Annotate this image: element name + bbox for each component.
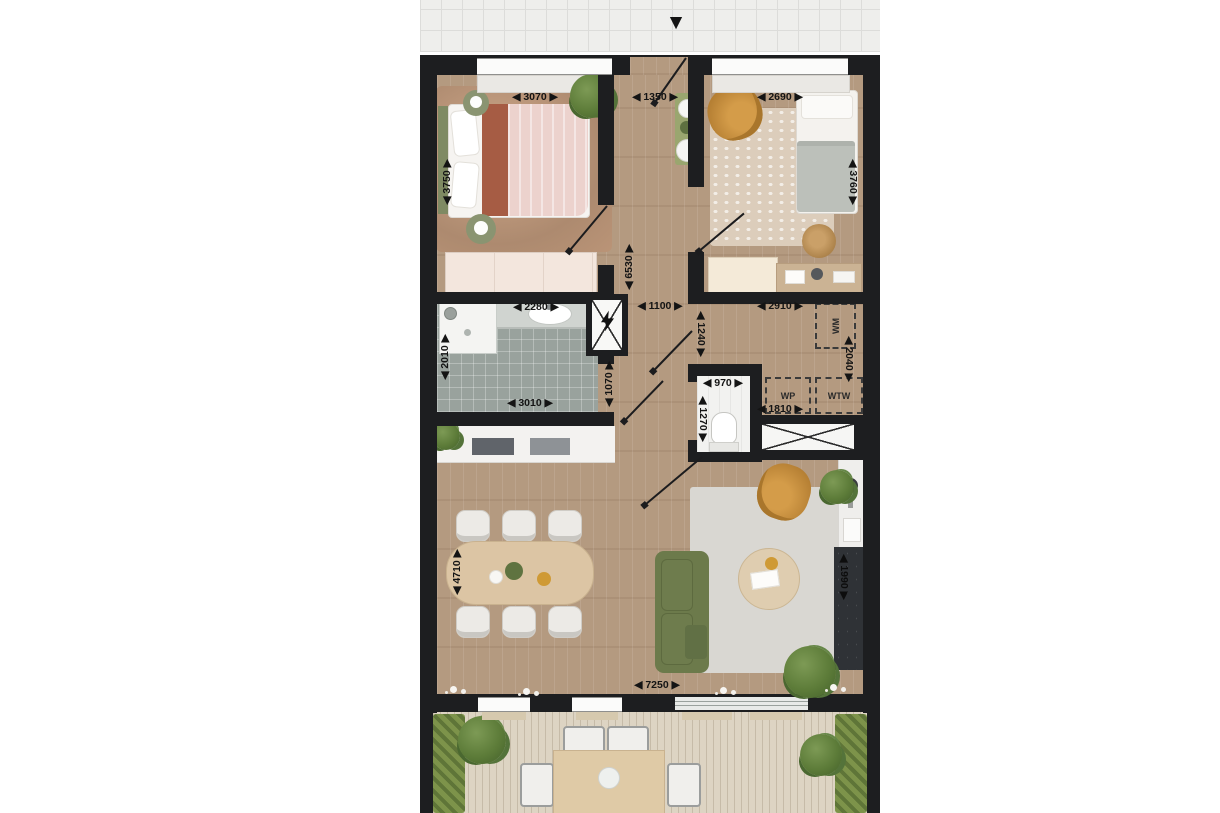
balcony-wall-right bbox=[867, 712, 880, 813]
wall-left bbox=[420, 55, 437, 713]
wall-bed1-hall bbox=[598, 72, 614, 205]
window bbox=[477, 58, 612, 75]
threshold bbox=[682, 712, 732, 720]
bed-blanket bbox=[508, 104, 588, 216]
dim-hall-width-1: ◀ 1100 ▶ bbox=[620, 299, 700, 313]
dim-tech-depth: ◀ 2040 ▶ bbox=[842, 314, 856, 404]
flower-deco bbox=[830, 684, 837, 691]
toilet bbox=[709, 412, 737, 450]
washing-machine-label: WM bbox=[831, 318, 841, 334]
dim-toilet-depth: ◀ 1270 ▶ bbox=[696, 374, 710, 464]
dim-hall-width-3: ◀ 1240 ▶ bbox=[694, 289, 708, 379]
threshold bbox=[482, 712, 526, 720]
appliance bbox=[530, 438, 570, 455]
bedroom2-desk bbox=[776, 263, 862, 295]
wall-bathroom-living bbox=[437, 412, 614, 426]
bowl bbox=[505, 562, 523, 580]
wall-right bbox=[863, 55, 880, 713]
dim-living-depth: ◀ 4710 ▶ bbox=[450, 527, 464, 617]
lamp bbox=[470, 96, 482, 108]
dim-hall-entry-width: ◀ 1350 ▶ bbox=[615, 90, 695, 104]
dim-bathroom-bottom: ◀ 3010 ▶ bbox=[482, 396, 578, 410]
plant-icon bbox=[458, 716, 506, 764]
gallery-walkway bbox=[420, 0, 880, 52]
bed-pillow bbox=[450, 161, 480, 209]
sofa bbox=[655, 551, 709, 673]
plate bbox=[598, 767, 620, 789]
papers bbox=[785, 270, 805, 284]
dining-chair bbox=[502, 606, 536, 638]
toilet-bowl bbox=[711, 412, 737, 444]
storage-closet-interior bbox=[762, 424, 854, 450]
bedroom2-wardrobe bbox=[708, 257, 778, 295]
bedroom1-dresser bbox=[445, 252, 597, 294]
sofa-ottoman bbox=[685, 625, 707, 659]
desk-lamp bbox=[811, 268, 823, 280]
kitchen-counter-top bbox=[437, 426, 615, 463]
plate bbox=[489, 570, 503, 584]
dim-living-width: ◀ 7250 ▶ bbox=[612, 678, 702, 692]
dining-chair bbox=[548, 510, 582, 542]
shower-drain-icon bbox=[464, 329, 471, 336]
plant-icon bbox=[800, 734, 842, 776]
dim-bedroom1-width: ◀ 3070 ▶ bbox=[485, 90, 585, 104]
plant-icon bbox=[820, 470, 854, 504]
flower-deco bbox=[523, 688, 530, 695]
toilet-tank bbox=[709, 442, 739, 452]
window bbox=[478, 697, 530, 712]
outdoor-chair bbox=[520, 763, 554, 807]
sofa-cushion bbox=[661, 559, 693, 611]
threshold bbox=[750, 712, 802, 720]
coffee-table bbox=[738, 548, 800, 610]
entrance-arrow-icon: ▼ bbox=[658, 12, 694, 34]
floor-plan: ▼ bbox=[420, 0, 880, 813]
cooktop bbox=[472, 438, 514, 455]
bowl bbox=[765, 557, 778, 570]
lamp bbox=[474, 221, 488, 235]
dim-tech-bottom: ◀ 1810 ▶ bbox=[738, 402, 822, 416]
storage-closet bbox=[753, 415, 863, 460]
floor-plan-canvas: ▼ bbox=[0, 0, 1220, 813]
dim-bedroom2-width: ◀ 2690 ▶ bbox=[732, 90, 828, 104]
flower-deco bbox=[450, 686, 457, 693]
heat-pump-label: WP bbox=[781, 391, 796, 401]
dining-table bbox=[446, 541, 594, 605]
dim-kitchen-length: ◀ 1990 ▶ bbox=[837, 532, 851, 622]
dim-bathroom-top: ◀ 2280 ▶ bbox=[490, 300, 582, 314]
dim-bedroom2-depth: ◀ 3760 ▶ bbox=[846, 137, 860, 227]
sliding-door bbox=[675, 697, 808, 710]
outdoor-table bbox=[553, 750, 665, 813]
dim-bathroom-left: ◀ 2010 ▶ bbox=[438, 312, 452, 402]
bed-pillow bbox=[450, 109, 481, 157]
window bbox=[572, 697, 622, 712]
lightning-bolt-icon bbox=[601, 310, 614, 332]
dim-hall-width-2: ◀ 1070 ▶ bbox=[602, 339, 616, 429]
book bbox=[750, 569, 780, 590]
bowl bbox=[537, 572, 551, 586]
threshold bbox=[576, 712, 618, 720]
dim-tech-width: ◀ 2910 ▶ bbox=[735, 299, 825, 313]
keyboard bbox=[833, 271, 855, 283]
desk-chair bbox=[802, 224, 836, 258]
plant-icon bbox=[784, 646, 836, 698]
balcony-wall-left bbox=[420, 712, 433, 813]
bed-runner bbox=[482, 104, 508, 216]
dining-chair bbox=[548, 606, 582, 638]
window bbox=[712, 58, 848, 75]
bedroom1-bed bbox=[438, 104, 588, 216]
dining-chair bbox=[502, 510, 536, 542]
outdoor-chair bbox=[667, 763, 701, 807]
flower-deco bbox=[720, 687, 727, 694]
dim-bedroom1-depth: ◀ 3750 ▶ bbox=[440, 137, 454, 227]
